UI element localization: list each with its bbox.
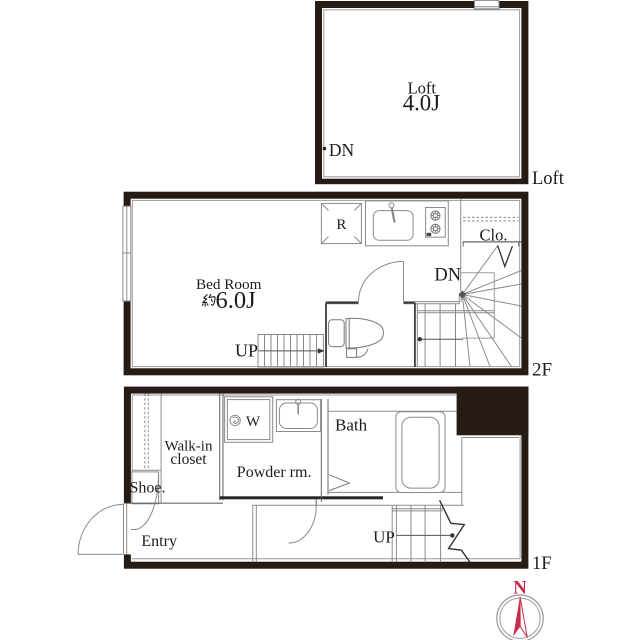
svg-text:2F: 2F (532, 359, 552, 380)
svg-text:closet: closet (170, 451, 207, 468)
svg-text:4.0J: 4.0J (403, 90, 440, 115)
svg-text:6.0J: 6.0J (216, 287, 257, 314)
svg-text:Loft: Loft (532, 169, 565, 189)
svg-text:R: R (336, 217, 346, 233)
svg-text:Clo.: Clo. (480, 225, 508, 244)
svg-text:DN: DN (329, 140, 355, 160)
svg-text:UP: UP (373, 527, 395, 546)
svg-text:W: W (246, 414, 261, 430)
svg-text:DN: DN (434, 265, 461, 285)
svg-text:1F: 1F (532, 554, 552, 574)
svg-text:UP: UP (235, 341, 258, 361)
svg-text:Powder rm.: Powder rm. (237, 464, 312, 481)
svg-text:Bath: Bath (335, 416, 368, 435)
svg-text:N: N (513, 577, 527, 598)
svg-text:Entry: Entry (141, 533, 177, 550)
svg-text:Shoe.: Shoe. (130, 480, 166, 497)
